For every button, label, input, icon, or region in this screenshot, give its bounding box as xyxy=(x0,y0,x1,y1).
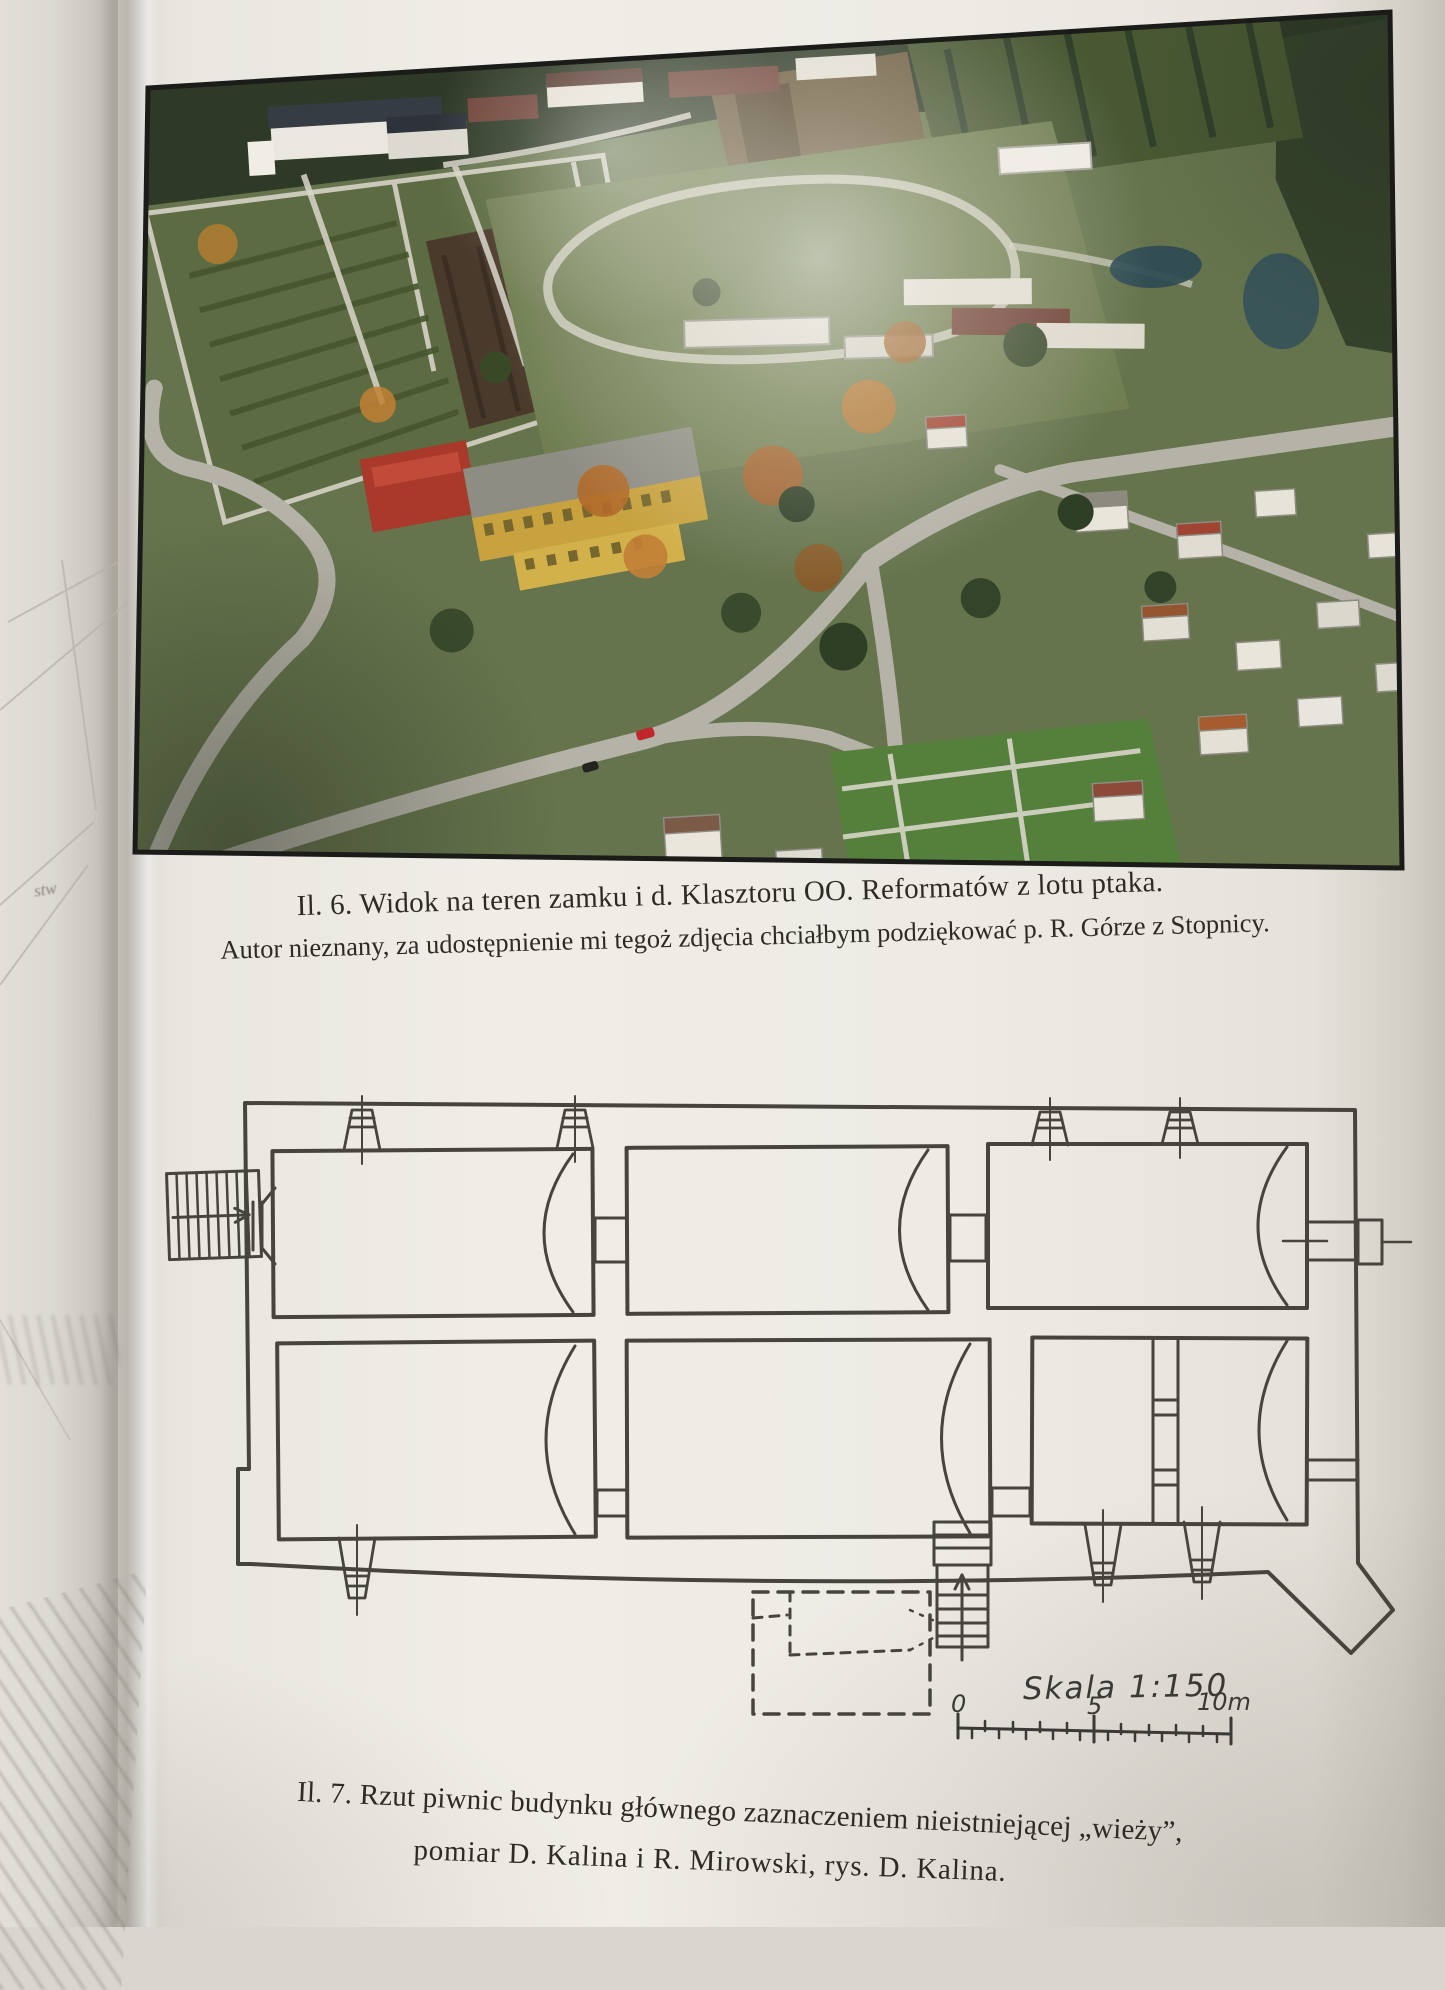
scale-tick-5: 5 xyxy=(1087,1692,1102,1720)
aerial-photo-scene xyxy=(90,0,1435,905)
partition-wall xyxy=(1153,1338,1178,1524)
door-passages xyxy=(595,1215,1030,1516)
right-niche xyxy=(1283,1220,1411,1480)
cellar-stairs xyxy=(934,1522,991,1660)
plan-outer-wall xyxy=(238,1103,1393,1653)
floor-plan-figure: Skala 1:150 0 5 10m xyxy=(165,1070,1415,1780)
aerial-photo-figure xyxy=(90,0,1435,905)
scale-tick-10m: 10m xyxy=(1197,1688,1251,1716)
scale-tick-0: 0 xyxy=(951,1690,966,1718)
left-page-text-fragment: stw xyxy=(33,878,59,901)
tower-dashed-outline xyxy=(753,1592,937,1714)
